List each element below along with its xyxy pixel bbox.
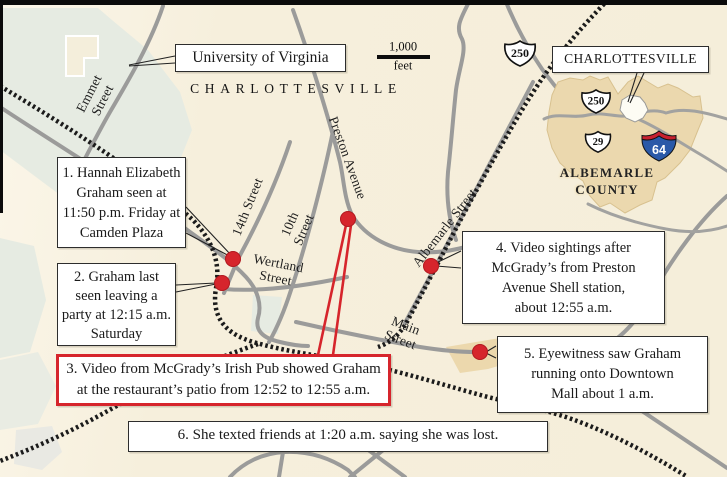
left-border-bar: [0, 5, 3, 213]
callout-6: 6. She texted friends at 1:20 a.m. sayin…: [128, 421, 548, 452]
us-29-number: 29: [593, 136, 604, 148]
event-dot-1: [225, 251, 241, 267]
green-area-left-2: [0, 352, 56, 430]
leader-line-callout-2: [176, 283, 216, 292]
red-leader-lines-callout-3: [318, 225, 351, 355]
us-250-shield-inset: 250: [579, 88, 613, 114]
inset-city-label: CHARLOTTESVILLE: [552, 46, 709, 73]
event-dot-3: [340, 211, 356, 227]
university-of-virginia-label: University of Virginia: [175, 44, 346, 72]
road-bottom-right-diagonal: [636, 407, 727, 468]
event-dot-5: [472, 344, 488, 360]
news-map-graphic: CHARLOTTESVILLE Emmet Street Preston Ave…: [0, 0, 727, 477]
scale-value: 1,000: [389, 40, 417, 55]
city-name-label: CHARLOTTESVILLE: [190, 81, 402, 97]
road-bottom-stub: [279, 452, 283, 477]
inset-map: [544, 73, 727, 232]
i-64-shield-inset: 64: [640, 130, 678, 162]
i-64-number: 64: [652, 143, 666, 157]
us-250-number: 250: [511, 46, 529, 60]
event-dot-4: [423, 258, 439, 274]
callout-1: 1. Hannah Elizabeth Graham seen at 11:50…: [57, 157, 186, 248]
us-29-shield-inset: 29: [583, 130, 613, 153]
top-border-bar: [0, 0, 727, 5]
scale-unit: feet: [394, 59, 413, 74]
us-250-shield-main: 250: [502, 39, 538, 67]
event-dot-2: [214, 275, 230, 291]
us-250-number-inset: 250: [588, 96, 605, 108]
albemarle-county-label: ALBEMARLE COUNTY: [560, 164, 655, 198]
callout-4: 4. Video sightings after McGrady’s from …: [462, 231, 665, 324]
callout-3: 3. Video from McGrady’s Irish Pub showed…: [56, 354, 391, 406]
green-area-left-1: [0, 238, 46, 358]
callout-5: 5. Eyewitness saw Graham running onto Do…: [497, 336, 708, 413]
road-bottom-curve: [230, 452, 355, 477]
gray-blob-bottom-left: [14, 426, 62, 470]
callout-2: 2. Graham last seen leaving a party at 1…: [57, 263, 176, 346]
